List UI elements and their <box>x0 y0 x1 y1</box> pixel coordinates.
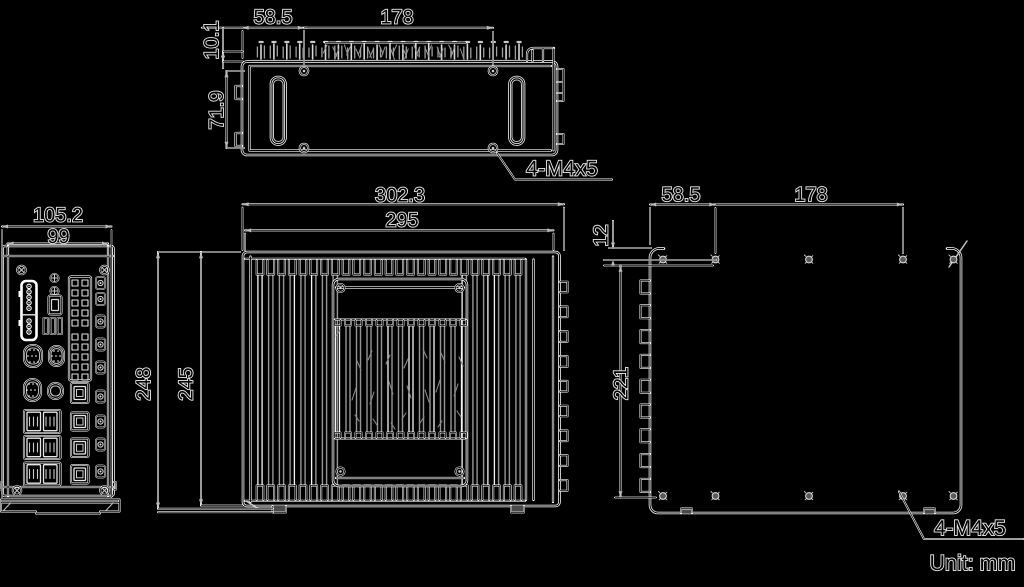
svg-text:10.1: 10.1 <box>201 21 223 60</box>
svg-text:302.3: 302.3 <box>375 185 425 207</box>
svg-text:4-M4x5: 4-M4x5 <box>934 516 1006 540</box>
svg-text:178: 178 <box>380 7 413 29</box>
svg-text:295: 295 <box>385 210 418 232</box>
svg-text:58.5: 58.5 <box>254 7 293 29</box>
svg-text:105.2: 105.2 <box>33 205 83 227</box>
svg-text:245: 245 <box>176 367 198 400</box>
svg-text:71.9: 71.9 <box>206 91 228 130</box>
svg-text:178: 178 <box>794 184 827 206</box>
svg-text:221: 221 <box>611 367 633 400</box>
svg-text:4-M4x5: 4-M4x5 <box>526 157 598 181</box>
svg-text:248: 248 <box>133 367 155 400</box>
svg-text:99: 99 <box>47 226 69 248</box>
svg-text:Unit: mm: Unit: mm <box>930 551 1016 575</box>
svg-text:12: 12 <box>591 224 613 246</box>
svg-text:58.5: 58.5 <box>662 184 701 206</box>
